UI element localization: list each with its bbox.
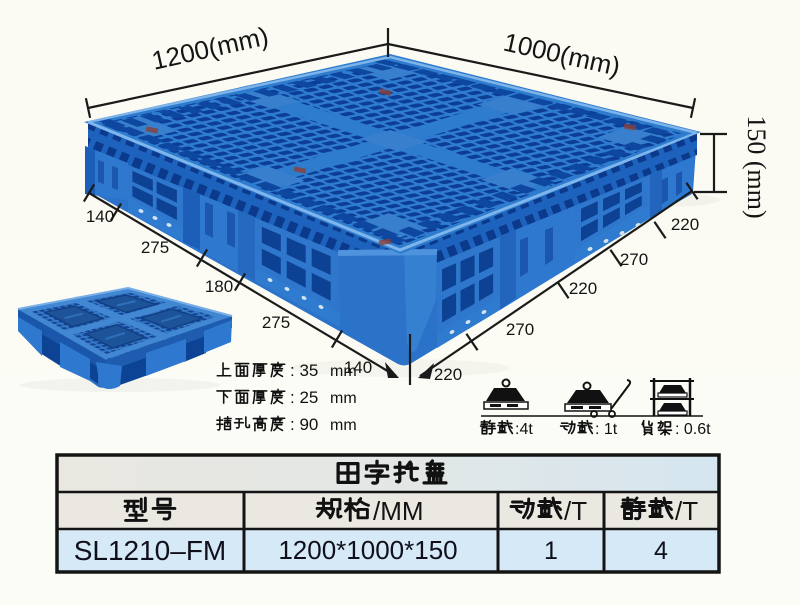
svg-text:: 35: : 35 [290,361,318,380]
svg-text:mm: mm [330,363,357,380]
svg-text:1: 1 [544,537,558,565]
svg-text:mm: mm [330,390,357,407]
svg-text:/T: /T [564,496,587,526]
svg-text:270: 270 [506,320,534,339]
svg-text:220: 220 [434,365,462,384]
svg-text:220: 220 [671,215,699,234]
svg-text:1200*1000*150: 1200*1000*150 [278,535,457,565]
svg-text:mm: mm [330,417,357,434]
svg-text:270: 270 [620,250,648,269]
svg-text:: 25: : 25 [290,388,318,407]
svg-text:: 0.6t: : 0.6t [675,421,711,438]
svg-text:180: 180 [205,277,233,296]
svg-text:: 90: : 90 [290,415,318,434]
svg-text::4t: :4t [515,421,533,438]
svg-text:SL1210–FM: SL1210–FM [74,535,227,566]
svg-text:4: 4 [654,537,668,565]
svg-text:140: 140 [86,207,114,226]
svg-text:275: 275 [141,238,169,257]
svg-text:275: 275 [262,313,290,332]
svg-text:/MM: /MM [373,496,424,526]
svg-text:: 1t: : 1t [595,421,618,438]
svg-text:150 (mm): 150 (mm) [742,115,771,218]
svg-text:220: 220 [569,279,597,298]
svg-text:/T: /T [675,496,698,526]
